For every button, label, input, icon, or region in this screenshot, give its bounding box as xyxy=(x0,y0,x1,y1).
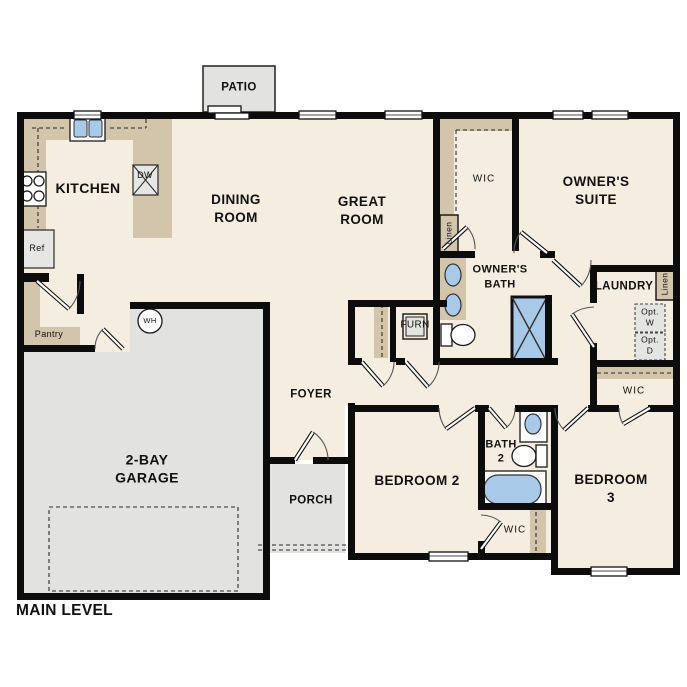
window xyxy=(385,111,422,119)
porch-label: PORCH xyxy=(289,493,333,508)
window xyxy=(592,111,628,119)
optional-washer-label: Opt. W xyxy=(641,306,659,327)
owners-wic-linen-label: Linen xyxy=(443,222,454,245)
floor-plan: PATIO KITCHEN DINING ROOM GREAT ROOM OWN… xyxy=(0,0,687,687)
optional-dryer-label: Opt. D xyxy=(641,334,659,355)
bedroom2-wic-label: WIC xyxy=(504,523,526,536)
bath2-label: BATH 2 xyxy=(485,438,516,466)
level-title: MAIN LEVEL xyxy=(16,601,113,621)
owners-wic-label: WIC xyxy=(473,172,495,185)
owners-toilet-icon xyxy=(441,324,475,346)
foyer-floor-area xyxy=(270,405,345,460)
window xyxy=(553,111,583,119)
bedroom2-label: BEDROOM 2 xyxy=(374,472,459,490)
laundry-label: LAUNDRY xyxy=(595,279,654,294)
owners-wic-shelf-left xyxy=(440,131,454,215)
kitchen-label: KITCHEN xyxy=(55,179,120,197)
kitchen-sink-icon xyxy=(70,116,105,141)
window xyxy=(429,552,468,561)
great-room-label: GREAT ROOM xyxy=(338,193,386,229)
shower-icon xyxy=(512,297,547,362)
floor-plan-drawing xyxy=(0,0,687,687)
window xyxy=(74,111,101,119)
pantry-label: Pantry xyxy=(35,329,63,341)
window xyxy=(299,111,336,119)
owners-suite-label: OWNER'S SUITE xyxy=(563,173,630,209)
bathtub-icon xyxy=(480,471,546,508)
laundry-linen-label: Linen xyxy=(659,273,670,296)
bedroom2-wic-shelf xyxy=(530,510,546,553)
foyer-label: FOYER xyxy=(290,387,332,402)
water-heater-label: WH xyxy=(143,316,156,326)
bath2-toilet-icon xyxy=(512,445,547,467)
bedroom3-wic-label: WIC xyxy=(623,384,645,397)
refrigerator-label: Ref xyxy=(29,243,44,255)
owners-wic-shelf-top xyxy=(440,119,512,131)
bedroom3-label: BEDROOM 3 xyxy=(573,471,649,507)
bath2-sink-icon xyxy=(520,407,547,442)
window xyxy=(591,567,627,576)
furnace-label: FURN xyxy=(400,318,429,331)
garage-label: 2-BAY GARAGE xyxy=(115,451,179,488)
coat-closet-shelf xyxy=(374,302,388,358)
patio-label: PATIO xyxy=(221,80,256,95)
dishwasher-label: DW xyxy=(137,170,153,182)
dining-room-label: DINING ROOM xyxy=(211,191,261,227)
owners-bath-label: OWNER'S BATH xyxy=(473,262,528,291)
